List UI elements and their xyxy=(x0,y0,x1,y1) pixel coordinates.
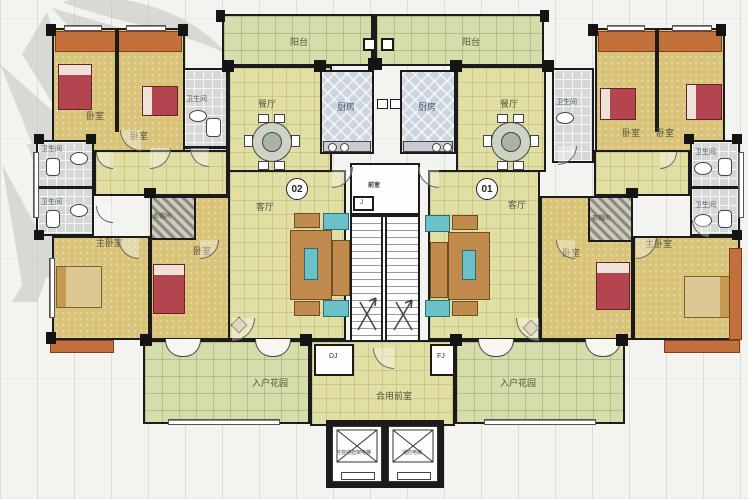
wall-column xyxy=(46,332,56,344)
sink xyxy=(70,152,88,165)
wall-column xyxy=(46,24,56,36)
bay-strip-top-right xyxy=(598,31,722,52)
elevator-x-right xyxy=(392,429,434,463)
bed xyxy=(58,64,92,110)
wall-column xyxy=(588,24,598,36)
tv-cabinet xyxy=(425,215,450,232)
bathroom-label: 卫生间 xyxy=(556,99,577,106)
bed xyxy=(153,264,185,314)
chair xyxy=(513,114,524,123)
wall-column xyxy=(626,188,638,198)
bedroom-divider-wall xyxy=(115,30,119,132)
wall-column xyxy=(450,60,462,72)
window xyxy=(64,25,102,31)
toilet xyxy=(206,118,221,137)
wall-column xyxy=(732,230,742,240)
coffee-table xyxy=(462,250,476,280)
bathroom-label: 卫生间 xyxy=(186,96,207,103)
shaft-dj-label: DJ xyxy=(329,353,338,360)
toilet xyxy=(46,158,60,176)
tv-cabinet xyxy=(323,213,349,230)
sink xyxy=(694,162,712,175)
chair xyxy=(274,114,285,123)
wall-column xyxy=(368,58,382,70)
elevator-door xyxy=(397,472,431,480)
living-label: 客厅 xyxy=(508,201,526,210)
shaft-j-label: J xyxy=(360,200,363,206)
bay-strip-master-left xyxy=(50,340,114,353)
chair xyxy=(258,114,269,123)
closet-label: 衣帽间 xyxy=(153,214,171,220)
window xyxy=(33,152,39,218)
dining-table-center xyxy=(501,132,521,152)
elevator-door xyxy=(341,472,375,480)
wall-column xyxy=(178,24,188,36)
dining-table-center xyxy=(262,132,282,152)
sink xyxy=(189,110,207,122)
shaft-j-box xyxy=(353,196,374,211)
elevator-left-label: 可容纳担架电梯 xyxy=(336,451,371,456)
wall-column xyxy=(34,134,44,144)
garden-label: 入户花园 xyxy=(500,379,536,388)
bathroom-wall xyxy=(690,186,740,189)
window xyxy=(738,152,744,218)
balcony-right-label: 阳台 xyxy=(462,38,480,47)
balcony-shaft-box xyxy=(363,38,376,51)
chair xyxy=(483,135,492,147)
wall-column xyxy=(314,60,326,72)
chair xyxy=(513,161,524,170)
balcony-shaft-box xyxy=(381,38,394,51)
garden-label: 入户花园 xyxy=(252,379,288,388)
wall-column xyxy=(540,10,549,22)
bedroom-label: 卧室 xyxy=(86,112,104,121)
wall-column xyxy=(86,134,96,144)
front-room-label: 前室 xyxy=(368,183,380,189)
window xyxy=(49,258,55,318)
bathroom-label: 卫生间 xyxy=(695,202,716,209)
bedroom-label: 卧室 xyxy=(622,129,640,138)
sink xyxy=(556,112,574,124)
bathroom-wall xyxy=(36,186,94,189)
wall-column xyxy=(222,60,234,72)
bathroom-label: 卫生间 xyxy=(41,146,62,153)
armchair xyxy=(294,213,320,228)
wall-column xyxy=(616,334,628,346)
tv-cabinet xyxy=(323,300,349,317)
meter-box xyxy=(390,99,401,109)
bathroom-label: 卫生间 xyxy=(41,199,62,206)
wall-column xyxy=(450,334,462,346)
coffee-table xyxy=(304,248,318,280)
unit-number-01: 01 xyxy=(476,178,498,200)
window xyxy=(168,419,280,425)
dining-label: 餐厅 xyxy=(258,100,276,109)
stove-burner xyxy=(443,143,452,152)
toilet xyxy=(46,210,60,228)
chair xyxy=(497,114,508,123)
bed xyxy=(142,86,178,116)
side-sofa xyxy=(430,242,448,298)
chair xyxy=(530,135,539,147)
shaft-fj-room xyxy=(430,344,455,376)
bathroom-label: 卫生间 xyxy=(695,149,716,156)
wall-column xyxy=(542,60,554,72)
armchair xyxy=(452,215,478,230)
meter-box xyxy=(377,99,388,109)
chair xyxy=(274,161,285,170)
wall-column xyxy=(216,10,225,22)
wall-column xyxy=(140,334,152,346)
tv-cabinet xyxy=(425,300,450,317)
chair xyxy=(291,135,300,147)
bed xyxy=(686,84,722,120)
wall-column xyxy=(300,334,312,346)
toilet xyxy=(718,158,732,176)
bay-strip-master-right-side xyxy=(729,248,742,340)
shaft-fj-label: FJ xyxy=(437,353,445,360)
chair xyxy=(497,161,508,170)
bedroom-label: 卧室 xyxy=(656,129,674,138)
shaft-dj-room xyxy=(314,344,354,376)
wall-column xyxy=(684,134,694,144)
lobby-label: 合用前室 xyxy=(376,392,412,401)
chair xyxy=(244,135,253,147)
stove-burner xyxy=(328,143,337,152)
wall-column xyxy=(34,230,44,240)
bay-strip-master-right xyxy=(664,340,740,353)
balcony-left-label: 阳台 xyxy=(290,38,308,47)
unit-number-02: 02 xyxy=(286,178,308,200)
window xyxy=(607,25,645,31)
sink xyxy=(70,204,88,217)
armchair xyxy=(452,301,478,316)
master-bed xyxy=(56,266,102,308)
elevator-right-label: 消防电梯 xyxy=(402,451,422,456)
closet-label: 衣帽间 xyxy=(592,216,610,222)
side-sofa xyxy=(332,240,350,296)
door-swing xyxy=(418,167,439,188)
dining-label: 餐厅 xyxy=(500,100,518,109)
window xyxy=(672,25,712,31)
chair xyxy=(258,161,269,170)
wall-column xyxy=(716,24,726,36)
living-label: 客厅 xyxy=(256,203,274,212)
bedroom-divider-wall xyxy=(655,30,659,132)
toilet xyxy=(718,210,732,228)
wall-column xyxy=(732,134,742,144)
armchair xyxy=(294,301,320,316)
stove-burner xyxy=(432,143,441,152)
kitchen-label: 厨房 xyxy=(418,103,436,112)
window xyxy=(126,25,166,31)
bed xyxy=(596,262,630,310)
kitchen-label: 厨房 xyxy=(337,103,355,112)
stove-burner xyxy=(340,143,349,152)
wall-column xyxy=(144,188,156,198)
bed xyxy=(600,88,636,120)
master-bed xyxy=(684,276,730,318)
floor-plan-canvas: 阳台 阳台 卧室 卧室 卫生间 卫生间 卫生间 主卧室 衣帽间 卧室 餐厅 厨房 xyxy=(0,0,748,499)
window xyxy=(484,419,596,425)
stair-arrows xyxy=(352,278,418,342)
elevator-x-left xyxy=(336,429,378,463)
